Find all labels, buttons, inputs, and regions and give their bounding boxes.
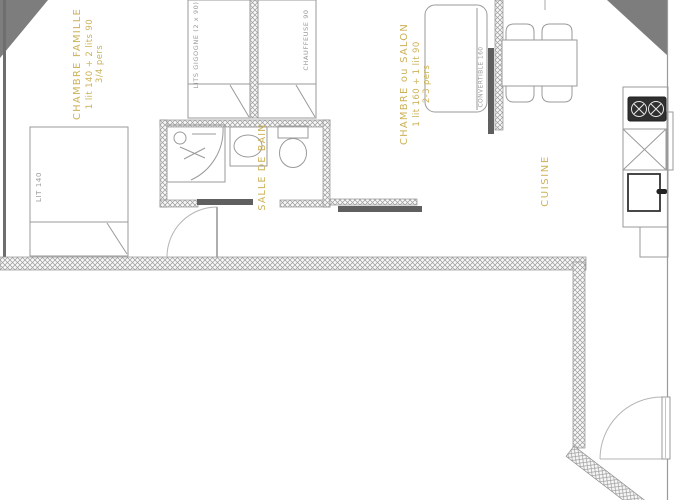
toilet-tank xyxy=(278,126,308,138)
kitchen-sink-cross xyxy=(623,129,666,170)
left-exterior-wall xyxy=(3,0,6,258)
sink-basin xyxy=(234,135,262,157)
corridor-sliding-door xyxy=(338,206,422,212)
chair-bottom-right xyxy=(542,86,572,102)
bed-gigogne xyxy=(188,0,250,118)
corridor-door-arc xyxy=(167,207,217,257)
chair-bottom-left xyxy=(506,86,534,102)
bed-chauffeuse-pillow xyxy=(258,84,316,117)
chair-top-right xyxy=(542,24,572,40)
entry-door-arc xyxy=(600,397,662,459)
bed-gigogne-pillow xyxy=(188,84,250,117)
diagonal-wall xyxy=(566,446,652,500)
bed-lit140 xyxy=(30,127,128,256)
bed-chauffeuse xyxy=(258,0,316,118)
bathroom-bottom-wall-right xyxy=(280,200,330,207)
bed-divider-wall xyxy=(250,0,258,118)
bathroom-left-wall xyxy=(160,120,167,207)
chair-top-left xyxy=(506,24,534,40)
floor-plan-drawing xyxy=(0,0,700,500)
bathroom-bottom-wall-left xyxy=(160,200,198,207)
salon-sliding-door xyxy=(488,48,494,134)
floor-plan: CHAMBRE FAMILLE 1 lit 140 + 2 lits 90 3/… xyxy=(0,0,700,500)
bed-lit140-pillow xyxy=(30,222,128,254)
toilet-bowl xyxy=(280,139,307,168)
bathroom-right-wall xyxy=(323,120,330,207)
sink-counter xyxy=(230,127,267,166)
bathroom-sliding-door xyxy=(197,199,253,205)
fridge-handle-knob xyxy=(656,189,661,194)
corridor-wall xyxy=(330,199,417,205)
right-lower-wall xyxy=(573,262,585,448)
shower-head-icon xyxy=(174,132,186,144)
top-left-corner-triangle xyxy=(0,0,48,58)
top-right-corner-triangle xyxy=(607,0,668,56)
dining-table xyxy=(502,40,577,86)
bottom-wall xyxy=(0,257,586,270)
fridge xyxy=(628,174,660,211)
shower-spray-lines xyxy=(180,147,205,159)
kitchen-counter-extension xyxy=(640,227,668,257)
convertible-sofa xyxy=(425,5,487,112)
